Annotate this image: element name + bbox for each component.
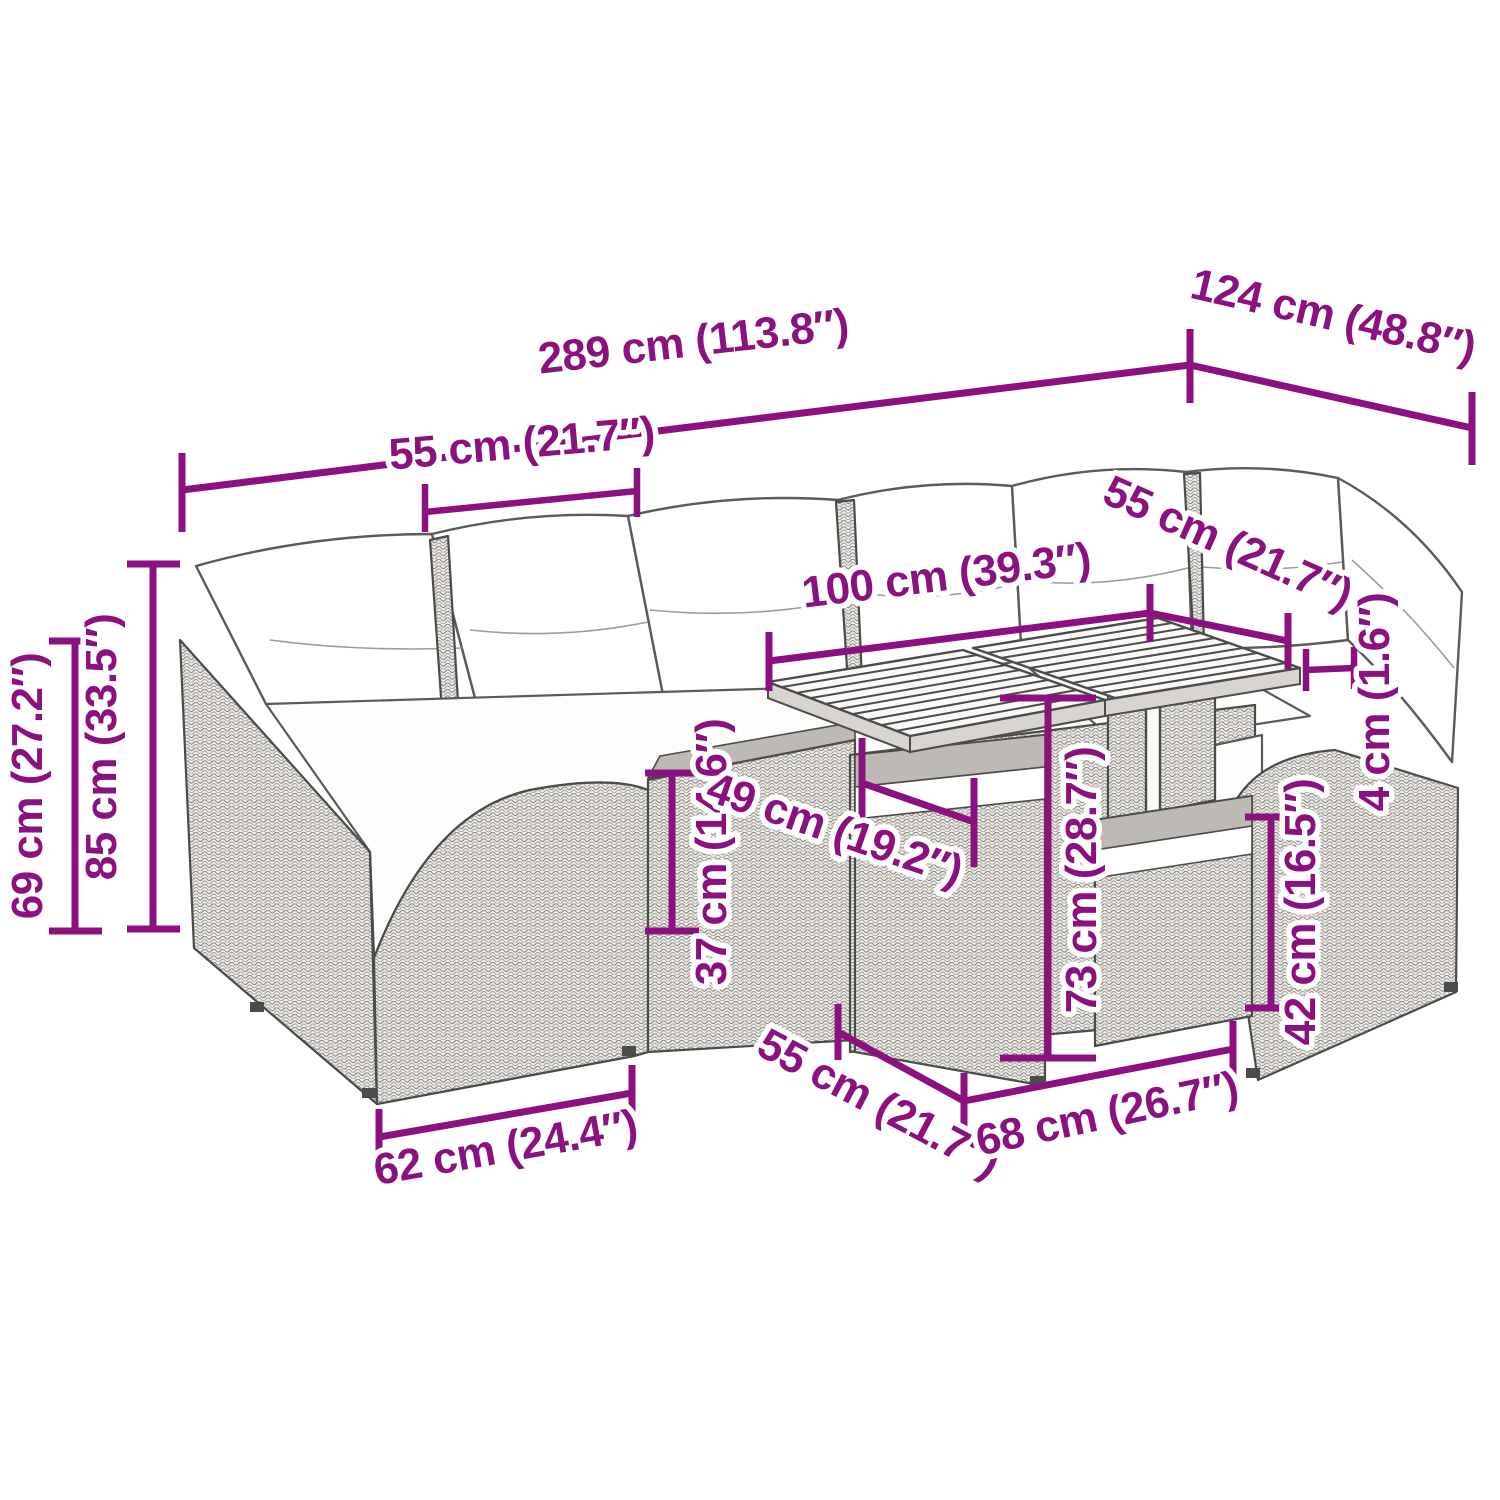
dim-armrest-height-label: 42 cm (16.5″) <box>1276 779 1325 1046</box>
dim-back-cushion-width-label: 55 cm (21.7″) <box>387 408 657 480</box>
dim-overall-height: 85 cm (33.5″) <box>77 564 180 929</box>
dim-table-top-thickness-label: 4 cm (1.6″) <box>1350 593 1399 812</box>
dim-overall-depth: 124 cm (48.8″) <box>1186 259 1480 465</box>
curved-arm-right <box>1222 750 1458 1080</box>
dim-overall-height-label: 85 cm (33.5″) <box>77 614 126 881</box>
diagram-canvas: 289 cm (113.8″) 124 cm (48.8″) 55 cm (21… <box>0 0 1500 1500</box>
dim-back-cushion-width: 55 cm (21.7″) <box>387 408 657 532</box>
dim-overall-width-label: 289 cm (113.8″) <box>536 300 852 384</box>
dim-table-height-label: 73 cm (28.7″) <box>1057 747 1106 1014</box>
dim-seat-height-label: 37 cm (14.6″) <box>687 719 736 986</box>
dim-overall-depth-label: 124 cm (48.8″) <box>1186 259 1480 372</box>
dimension-diagram: 289 cm (113.8″) 124 cm (48.8″) 55 cm (21… <box>0 0 1500 1500</box>
dim-backrest-height-label: 69 cm (27.2″) <box>3 653 52 920</box>
